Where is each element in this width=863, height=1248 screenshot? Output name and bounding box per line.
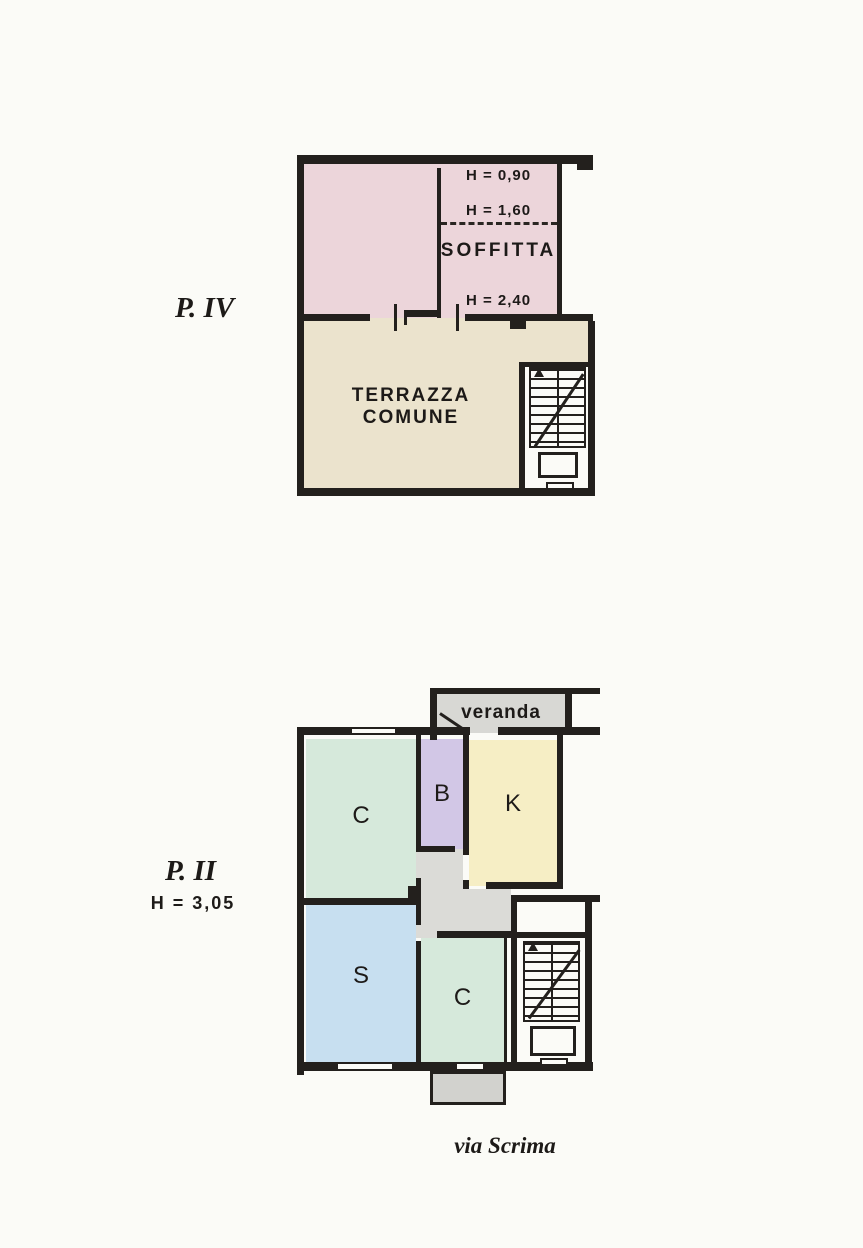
stair-direction-arrow-icon bbox=[534, 368, 544, 377]
elevator-sill-lower bbox=[540, 1058, 568, 1066]
floor-label-upper: P. IV bbox=[175, 292, 234, 325]
soffitta-label: SOFFITTA bbox=[440, 240, 557, 262]
wall-k-right bbox=[557, 735, 563, 889]
outer-wall-left bbox=[297, 727, 304, 1075]
terrazza-strip-above-stairs bbox=[519, 321, 593, 362]
wall-right bbox=[588, 321, 595, 496]
balcony-door-opening bbox=[457, 1062, 483, 1071]
room-b-label: B bbox=[421, 780, 463, 808]
room-c-upper-label: C bbox=[306, 802, 416, 830]
attic-left-area bbox=[303, 163, 440, 318]
wall-stair-right bbox=[585, 902, 592, 1071]
wall-c-s-divider bbox=[304, 898, 416, 905]
scanned-floor-plan-page: P. IV H = 0,90 H = 1,60 SOFFITTA H = 2,4… bbox=[0, 0, 863, 1248]
soffitta-dashed-divider bbox=[441, 222, 557, 225]
veranda-top-wall bbox=[430, 688, 578, 694]
ceiling-height-label: H = 3,05 bbox=[143, 893, 243, 914]
wall-top-bar-lip bbox=[577, 164, 593, 170]
terrazza-label: TERRAZZA COMUNE bbox=[303, 385, 519, 429]
stair-treads-lower bbox=[523, 941, 580, 1022]
wall-landing-top bbox=[511, 895, 600, 902]
stair-top-wall-lower bbox=[517, 932, 585, 938]
wall-c-lower-top bbox=[437, 931, 511, 938]
veranda-ext-top bbox=[572, 688, 600, 694]
wall-soffitta-right bbox=[557, 164, 562, 318]
room-k-label: K bbox=[469, 790, 557, 818]
soffitta-height-mid: H = 1,60 bbox=[440, 202, 557, 219]
wall-top-bar bbox=[297, 155, 593, 164]
elevator-sill bbox=[546, 482, 574, 490]
wall-stair-left bbox=[511, 895, 517, 1071]
wall-k-bottom bbox=[486, 882, 563, 889]
room-s-label: S bbox=[306, 962, 416, 990]
wall-left bbox=[297, 155, 304, 496]
room-c-lower-label: C bbox=[421, 984, 504, 1012]
wall-mid-b-step bbox=[404, 310, 407, 325]
elevator-shaft-lower bbox=[530, 1026, 576, 1056]
wall-s-right-a bbox=[416, 905, 421, 925]
window-bottom-s bbox=[338, 1062, 392, 1071]
soffitta-height-bottom: H = 2,40 bbox=[440, 292, 557, 309]
wall-mid-b bbox=[404, 310, 440, 317]
wall-mid-c bbox=[465, 314, 593, 321]
floor-label-lower: P. II bbox=[165, 855, 216, 888]
street-label: via Scrima bbox=[420, 1133, 590, 1159]
door-jamb-1 bbox=[394, 304, 397, 331]
balcony bbox=[430, 1071, 506, 1105]
wall-c-lower-right bbox=[504, 938, 507, 1062]
wall-mid-notch bbox=[510, 321, 526, 329]
wall-junction-block bbox=[408, 886, 421, 900]
wall-k-left-piece bbox=[463, 880, 469, 889]
wall-b-bottom bbox=[416, 846, 455, 852]
elevator-shaft bbox=[538, 452, 578, 478]
wall-mid-a bbox=[304, 314, 370, 321]
veranda-label: veranda bbox=[437, 702, 565, 724]
hallway-vertical bbox=[416, 849, 463, 938]
facade-wall-right bbox=[498, 727, 600, 735]
stair-direction-arrow-icon-lower bbox=[528, 942, 538, 951]
window-top bbox=[352, 727, 395, 735]
soffitta-height-top: H = 0,90 bbox=[440, 167, 557, 184]
